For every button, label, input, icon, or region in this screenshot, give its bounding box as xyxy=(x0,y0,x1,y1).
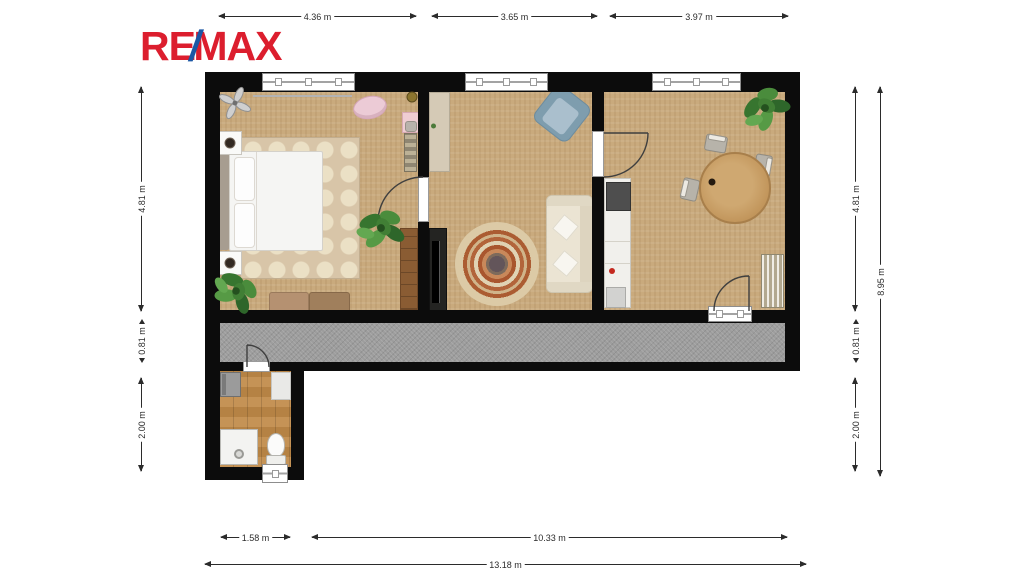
sofa-armrest xyxy=(547,196,592,206)
tv-unit xyxy=(429,228,447,312)
round-rug xyxy=(455,222,539,306)
dimension-bottom-main: 10.33 m xyxy=(311,533,788,543)
sink-unit xyxy=(606,287,626,308)
wall-right xyxy=(785,72,800,371)
dimension-bottom-bathroom: 1.58 m xyxy=(220,533,291,543)
bathroom-cabinet xyxy=(271,372,291,400)
balcony-door-threshold xyxy=(708,306,752,322)
wall-bedroom-living-b xyxy=(418,222,429,310)
dimension-top-bedroom: 4.36 m xyxy=(218,12,417,22)
dimension-top-kitchen: 3.97 m xyxy=(609,12,789,22)
bedroom-window xyxy=(262,73,355,91)
bedroom-door-jamb xyxy=(418,177,429,222)
dimension-left-rooms: 4.81 m xyxy=(137,86,147,312)
vanity-stool xyxy=(405,121,417,132)
washing-machine xyxy=(220,372,241,397)
dimension-top-living: 3.65 m xyxy=(431,12,598,22)
dimension-left-bathroom: 2.00 m xyxy=(137,377,147,472)
bed-headboard xyxy=(219,154,229,250)
balcony-corridor-floor xyxy=(220,323,785,362)
wall-balcony-bottom-b xyxy=(270,362,800,371)
nightstand xyxy=(218,131,242,155)
sofa-back xyxy=(580,196,592,292)
wall-living-kitchen-a xyxy=(592,92,604,131)
floorplan-canvas: 4.36 m 3.65 m 3.97 m 4.81 m 0.81 m 2.00 … xyxy=(0,0,1024,576)
pillow xyxy=(234,157,255,201)
bathroom-window xyxy=(262,464,288,483)
wall-balcony-bottom-a xyxy=(205,362,243,371)
curtain-rod xyxy=(253,95,352,97)
dimension-right-rooms: 4.81 m xyxy=(851,86,861,312)
living-room-window xyxy=(465,73,548,91)
sofa xyxy=(546,195,593,293)
dining-table xyxy=(699,152,771,224)
counter-seam xyxy=(605,263,630,264)
armchair-cushion xyxy=(541,96,580,135)
dimension-right-bathroom: 2.00 m xyxy=(851,377,861,472)
sofa-armrest xyxy=(547,282,592,292)
duvet-fold xyxy=(256,152,257,250)
shower-drain xyxy=(234,449,244,459)
wall-living-kitchen-b xyxy=(592,177,604,310)
wall-bathroom-right xyxy=(291,371,304,467)
nightstand xyxy=(218,251,242,275)
wardrobe-cabinet xyxy=(429,92,450,172)
pillow xyxy=(234,203,255,248)
dimension-bottom-total: 13.18 m xyxy=(204,560,807,570)
shower xyxy=(220,429,258,465)
wall-bathroom-bottom xyxy=(205,467,304,480)
wall-left xyxy=(205,72,220,480)
radiator xyxy=(761,254,784,308)
kitchen-counter xyxy=(604,178,631,308)
kitchen-window xyxy=(652,73,741,91)
remax-logo: RE/MAX xyxy=(140,26,281,67)
tv-screen xyxy=(432,241,440,303)
washer-door-edge xyxy=(222,374,226,395)
logo-max: MAX xyxy=(193,23,281,69)
dining-chair xyxy=(704,133,729,154)
throw-pillow xyxy=(552,250,579,277)
cooktop xyxy=(606,182,631,211)
double-bed xyxy=(229,151,323,251)
ladder-shelf xyxy=(404,133,417,172)
kitchen-door-jamb xyxy=(592,131,604,177)
wall-bedroom-living-a xyxy=(418,92,429,177)
toilet-bowl xyxy=(267,433,285,457)
dimension-right-total: 8.95 m xyxy=(876,86,886,477)
bedroom-sideboard xyxy=(400,228,418,310)
bathroom-door-jamb xyxy=(243,361,270,372)
dimension-right-balcony: 0.81 m xyxy=(848,322,864,360)
counter-seam xyxy=(605,241,630,242)
throw-pillow xyxy=(552,214,579,241)
dimension-left-balcony: 0.81 m xyxy=(134,322,150,360)
